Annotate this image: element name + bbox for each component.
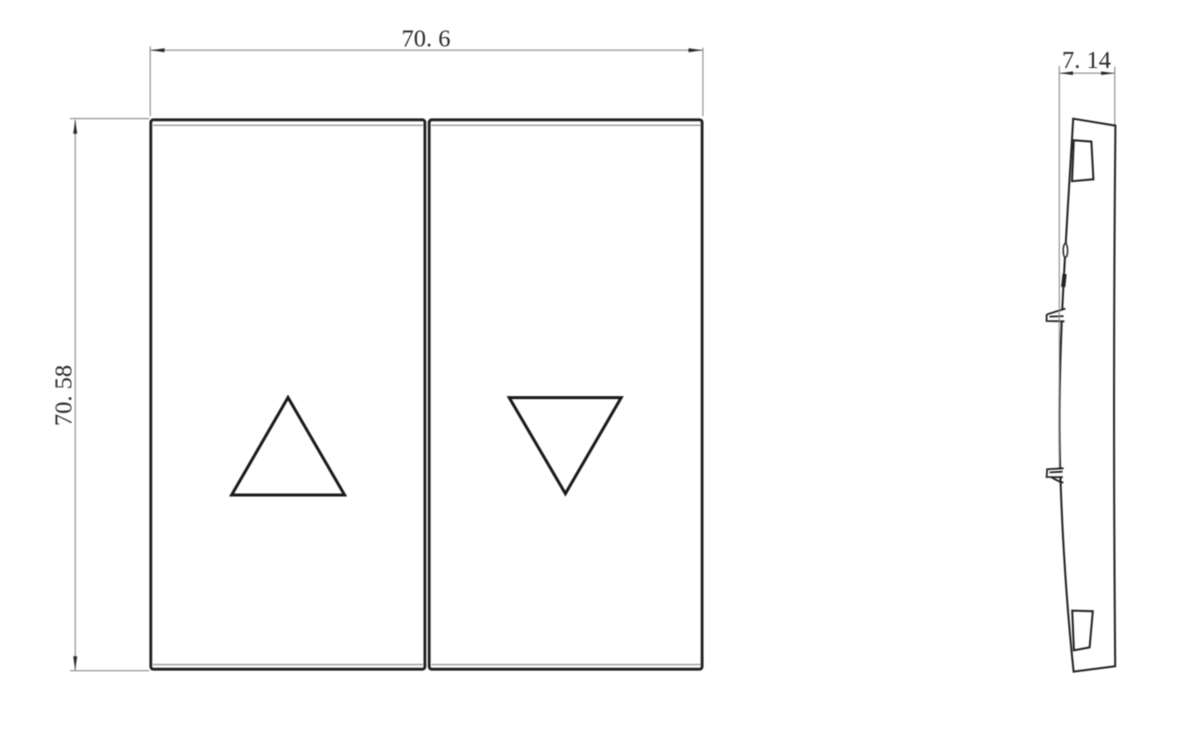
svg-text:7. 14: 7. 14 [1062,47,1111,74]
svg-text:70. 6: 70. 6 [402,26,451,53]
svg-text:70. 58: 70. 58 [51,365,78,426]
